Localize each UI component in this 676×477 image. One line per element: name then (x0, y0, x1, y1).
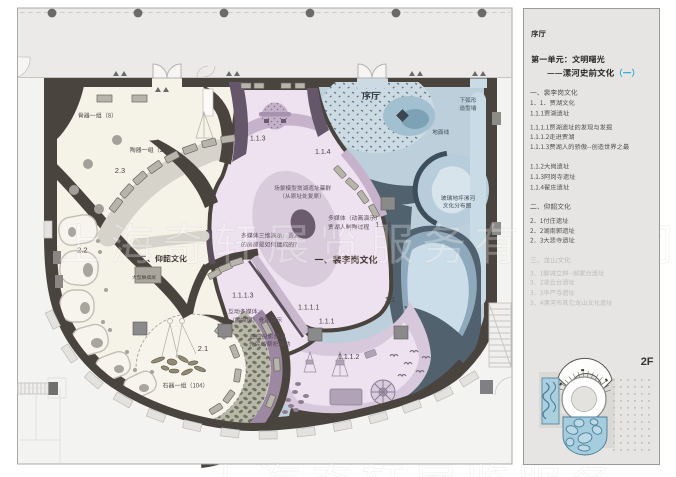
svg-text:2.1: 2.1 (198, 344, 208, 353)
svg-text:1.1.1: 1.1.1 (319, 319, 335, 326)
svg-text:1.1: 1.1 (385, 295, 395, 304)
svg-text:2F: 2F (641, 356, 654, 368)
svg-text:1.1.1.3: 1.1.1.3 (232, 293, 254, 300)
svg-text:2.3: 2.3 (115, 166, 125, 175)
svg-text:1.1.3: 1.1.3 (250, 136, 266, 143)
svg-text:1.1.1.2: 1.1.1.2 (338, 354, 360, 361)
svg-text:1.1.4: 1.1.4 (315, 149, 331, 156)
svg-text:1.1.1.1: 1.1.1.1 (298, 305, 320, 312)
